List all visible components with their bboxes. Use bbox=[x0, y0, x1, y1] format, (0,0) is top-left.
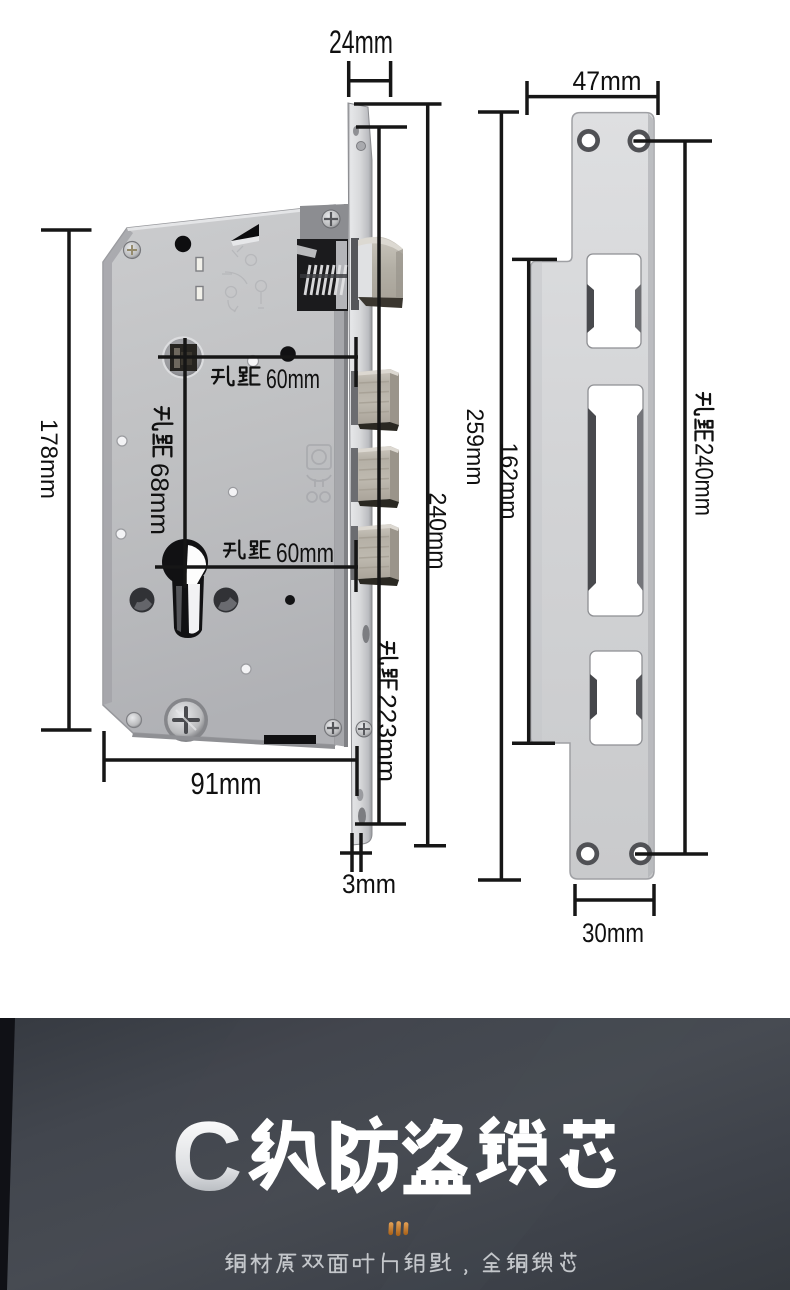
svg-text:91mm: 91mm bbox=[191, 766, 262, 801]
svg-text:3mm: 3mm bbox=[342, 869, 396, 899]
svg-text:24mm: 24mm bbox=[329, 24, 393, 60]
svg-text:162mm: 162mm bbox=[495, 443, 522, 520]
svg-text:178mm: 178mm bbox=[35, 419, 62, 499]
svg-text:259mm: 259mm bbox=[461, 409, 488, 486]
svg-text:68mm: 68mm bbox=[145, 463, 173, 535]
svg-text:240mm: 240mm bbox=[690, 443, 718, 516]
svg-text:C: C bbox=[172, 1101, 243, 1211]
svg-text:60mm: 60mm bbox=[266, 364, 320, 394]
svg-text:30mm: 30mm bbox=[582, 918, 644, 948]
svg-text:47mm: 47mm bbox=[573, 66, 642, 96]
svg-text:223mm: 223mm bbox=[373, 694, 401, 782]
svg-text:60mm: 60mm bbox=[276, 538, 334, 568]
svg-text:240mm: 240mm bbox=[424, 493, 451, 570]
